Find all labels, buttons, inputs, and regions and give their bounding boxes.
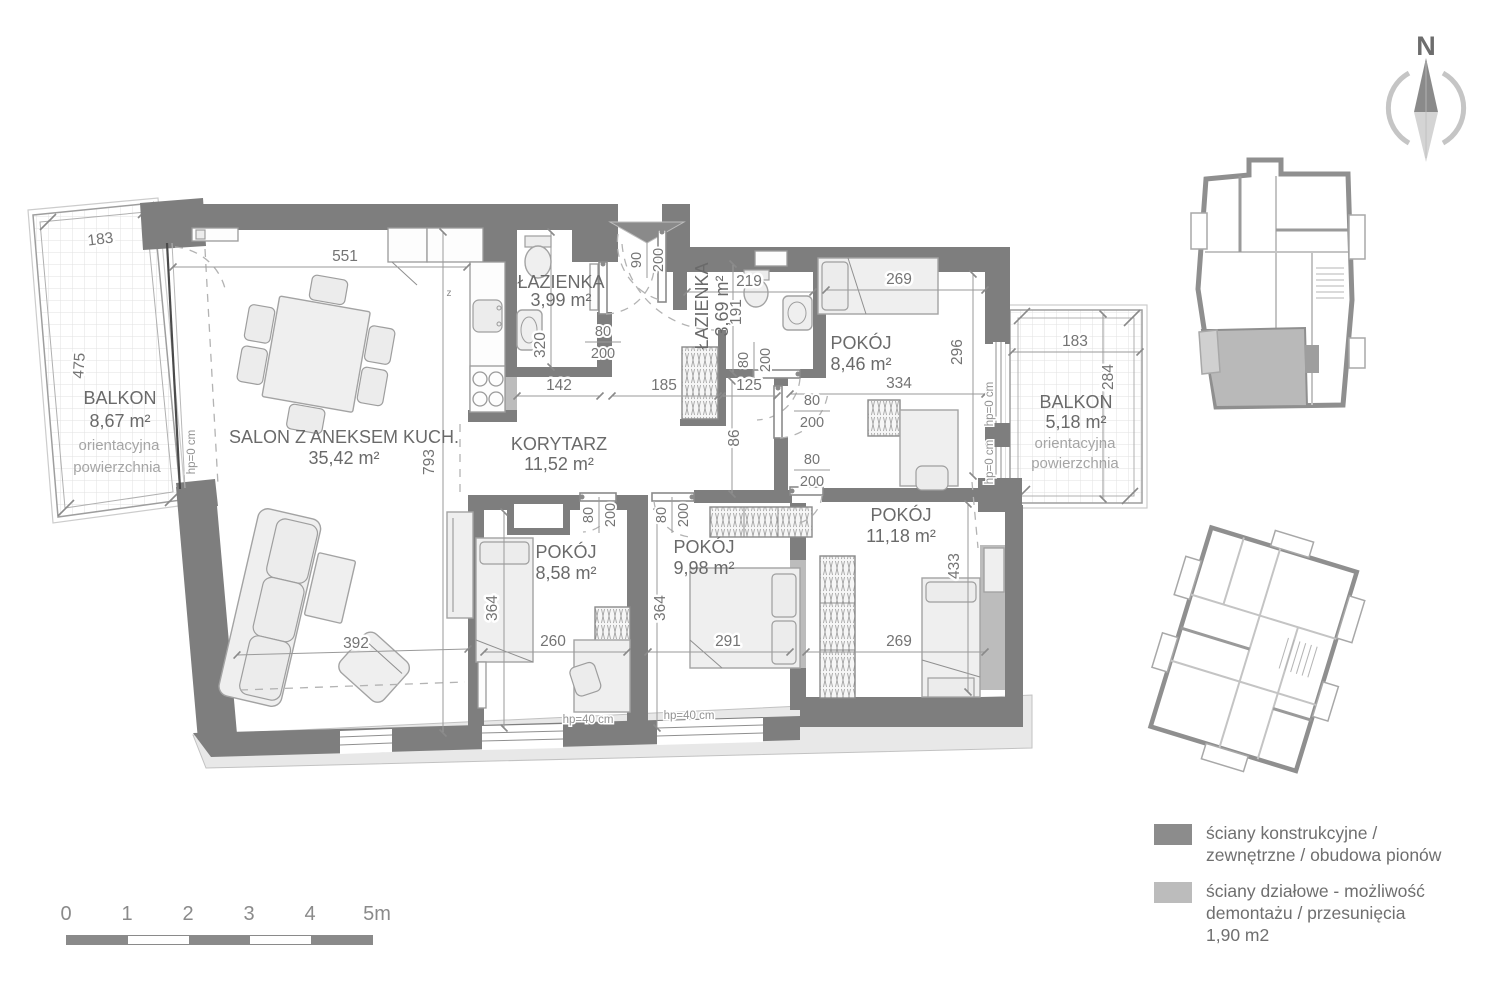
dim-185: 185 (651, 377, 677, 394)
svg-text:90: 90 (629, 252, 645, 268)
dining-table-icon (230, 265, 403, 444)
svg-text:200: 200 (800, 474, 824, 490)
svg-text:200: 200 (591, 346, 615, 362)
svg-text:200: 200 (758, 348, 774, 372)
svg-text:200: 200 (676, 503, 692, 527)
scale-tick-0: 0 (60, 903, 71, 926)
svg-text:80: 80 (804, 452, 820, 468)
dim-392: 392 (343, 635, 369, 652)
desk-858-icon (568, 640, 630, 712)
svg-text:80: 80 (804, 393, 820, 409)
wardrobe-998-icon (710, 507, 812, 537)
svg-text:KORYTARZ: KORYTARZ (511, 434, 607, 454)
dim-219: 219 (736, 273, 762, 290)
legend-partition-line3: 1,90 m2 (1206, 924, 1425, 946)
dim-142: 142 (546, 377, 572, 394)
sill-hp0-right-1: hp=0 cm (984, 382, 996, 426)
svg-text:80: 80 (581, 507, 597, 523)
dim-551: 551 (332, 248, 358, 265)
scale-bar-strip (66, 935, 373, 945)
wardrobe-846-icon (868, 400, 900, 436)
dim-260: 260 (540, 633, 566, 650)
shelf-1118-icon (984, 548, 1004, 592)
floor-plan-page: z (0, 0, 1500, 1003)
legend-swatch-structural (1154, 824, 1192, 845)
door-size-998: 80 200 (654, 497, 692, 533)
dim-296: 296 (949, 339, 966, 365)
dim-269-top: 269 (886, 271, 912, 288)
svg-text:3,69 m²: 3,69 m² (712, 275, 732, 336)
key-plan-lower (1131, 508, 1377, 791)
room-label-lazienka-1: ŁAZIENKA 3,99 m² (517, 272, 604, 310)
tv-sideboard-icon (447, 512, 473, 618)
dim-284: 284 (1100, 364, 1117, 390)
bed-1118-icon (922, 578, 980, 697)
svg-text:80: 80 (654, 507, 670, 523)
svg-text:orientacyjna: orientacyjna (79, 437, 161, 454)
radiator-858-icon (478, 662, 486, 708)
svg-text:11,18 m²: 11,18 m² (866, 526, 936, 546)
legend-structural-line1: ściany konstrukcyjne / (1206, 822, 1441, 844)
svg-text:11,52 m²: 11,52 m² (524, 454, 594, 474)
svg-text:200: 200 (651, 248, 667, 272)
dim-183-left: 183 (87, 230, 115, 250)
svg-text:200: 200 (800, 415, 824, 431)
scale-tick-2: 2 (182, 903, 193, 926)
wardrobe-1118-icon (820, 556, 855, 698)
svg-text:8,67 m²: 8,67 m² (89, 411, 150, 431)
door-size-1118: 80 200 (794, 452, 830, 490)
scale-tick-4: 4 (304, 903, 315, 926)
legend-item-partition: ściany działowe - możliwość demontażu / … (1154, 880, 1484, 946)
svg-text:ŁAZIENKA: ŁAZIENKA (517, 272, 604, 292)
svg-text:POKÓJ: POKÓJ (535, 541, 596, 562)
room-label-pokoj-846: POKÓJ 8,46 m² (830, 332, 891, 374)
sill-hp40-858: hp=40 cm (563, 714, 614, 726)
compass-north-label: N (1416, 31, 1436, 61)
scale-tick-1: 1 (121, 903, 132, 926)
svg-text:orientacyjna: orientacyjna (1035, 435, 1117, 452)
svg-text:powierzchnia: powierzchnia (73, 459, 161, 476)
scale-tick-3: 3 (243, 903, 254, 926)
svg-text:80: 80 (736, 352, 752, 368)
svg-text:powierzchnia: powierzchnia (1031, 455, 1119, 472)
svg-text:8,46 m²: 8,46 m² (830, 354, 891, 374)
wardrobe-corridor-icon (682, 347, 718, 419)
dim-125: 125 (736, 377, 762, 394)
svg-text:3,99 m²: 3,99 m² (530, 290, 591, 310)
svg-text:POKÓJ: POKÓJ (830, 332, 891, 353)
desk-846-icon (900, 410, 958, 490)
legend-partition-line1: ściany działowe - możliwość (1206, 880, 1425, 902)
dim-793: 793 (421, 449, 438, 475)
room-label-lazienka-2: ŁAZIENKA 3,69 m² (692, 262, 732, 349)
dim-364-a: 364 (484, 595, 501, 621)
legend: ściany konstrukcyjne / zewnętrzne / obud… (1154, 822, 1484, 960)
legend-structural-line2: zewnętrzne / obudowa pionów (1206, 844, 1441, 866)
scale-tick-5: 5m (363, 903, 391, 926)
wardrobe-858-icon (595, 607, 630, 645)
svg-text:SALON Z ANEKSEM KUCH.: SALON Z ANEKSEM KUCH. (229, 427, 459, 447)
dim-183-right: 183 (1062, 333, 1088, 350)
legend-partition-line2: demontażu / przesunięcia (1206, 902, 1425, 924)
dim-334: 334 (886, 375, 912, 392)
legend-item-structural: ściany konstrukcyjne / zewnętrzne / obud… (1154, 822, 1484, 866)
scale-bar: 0 1 2 3 4 5m (64, 903, 376, 945)
svg-text:35,42 m²: 35,42 m² (308, 448, 379, 468)
dim-364-b: 364 (652, 595, 669, 621)
dim-86: 86 (726, 429, 743, 446)
svg-text:9,98 m²: 9,98 m² (673, 558, 734, 578)
room-label-korytarz: KORYTARZ 11,52 m² (511, 434, 607, 474)
room-label-pokoj-998: POKÓJ 9,98 m² (673, 536, 734, 578)
svg-text:5,18 m²: 5,18 m² (1045, 412, 1106, 432)
svg-text:200: 200 (603, 503, 619, 527)
dim-475: 475 (70, 352, 89, 379)
bed-846-icon (818, 258, 938, 314)
sill-hp0-right-2: hp=0 cm (984, 440, 996, 484)
dim-269-bottom: 269 (886, 633, 912, 650)
door-size-846: 80 200 (794, 393, 830, 431)
svg-text:POKÓJ: POKÓJ (870, 504, 931, 525)
compass-icon: N (1388, 31, 1463, 162)
dishwasher-label: z (447, 288, 452, 299)
dim-320: 320 (532, 332, 549, 358)
room-label-pokoj-1118: POKÓJ 11,18 m² (866, 504, 936, 546)
legend-swatch-partition (1154, 882, 1192, 903)
svg-text:POKÓJ: POKÓJ (673, 536, 734, 557)
room-label-pokoj-858: POKÓJ 8,58 m² (535, 541, 596, 583)
svg-text:80: 80 (595, 324, 611, 340)
svg-text:8,58 m²: 8,58 m² (535, 563, 596, 583)
scale-bar-numbers: 0 1 2 3 4 5m (64, 903, 376, 927)
bed-998-icon (690, 568, 800, 668)
washbasin-2-icon (783, 296, 812, 330)
furniture: z (192, 228, 1004, 712)
sill-hp40-998: hp=40 cm (664, 710, 715, 722)
svg-text:BALKON: BALKON (1039, 392, 1112, 412)
svg-text:BALKON: BALKON (83, 388, 156, 408)
dim-433: 433 (946, 553, 963, 579)
key-plan-upper (1191, 160, 1365, 407)
sill-hp0-left: hp=0 cm (186, 430, 198, 474)
dim-291: 291 (715, 633, 741, 650)
svg-text:ŁAZIENKA: ŁAZIENKA (692, 262, 712, 349)
